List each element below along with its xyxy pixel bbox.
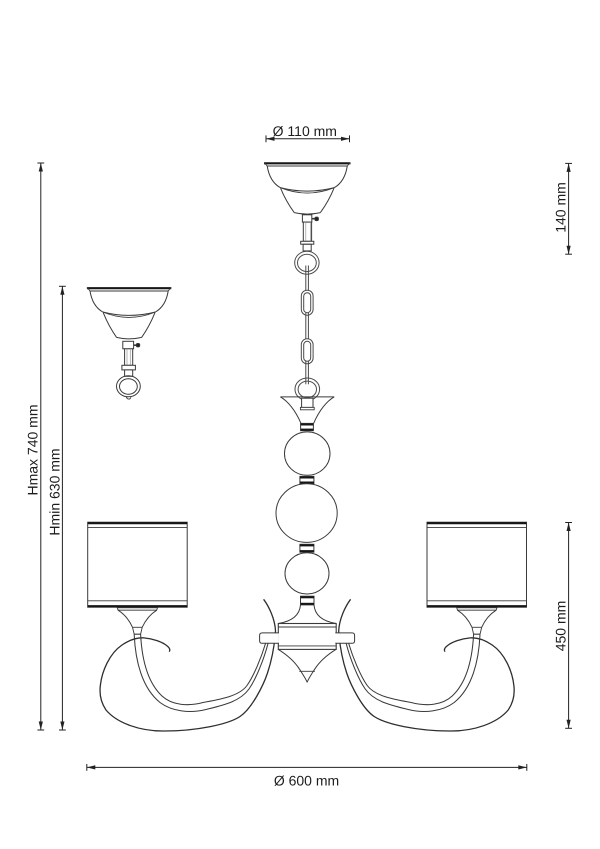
svg-text:Hmax 740 mm: Hmax 740 mm: [25, 404, 41, 495]
svg-text:Hmin 630 mm: Hmin 630 mm: [46, 448, 62, 535]
svg-text:450 mm: 450 mm: [553, 601, 569, 652]
svg-text:140 mm: 140 mm: [553, 182, 569, 233]
svg-text:Ø 110 mm: Ø 110 mm: [273, 123, 337, 139]
svg-text:Ø 600 mm: Ø 600 mm: [274, 773, 339, 789]
